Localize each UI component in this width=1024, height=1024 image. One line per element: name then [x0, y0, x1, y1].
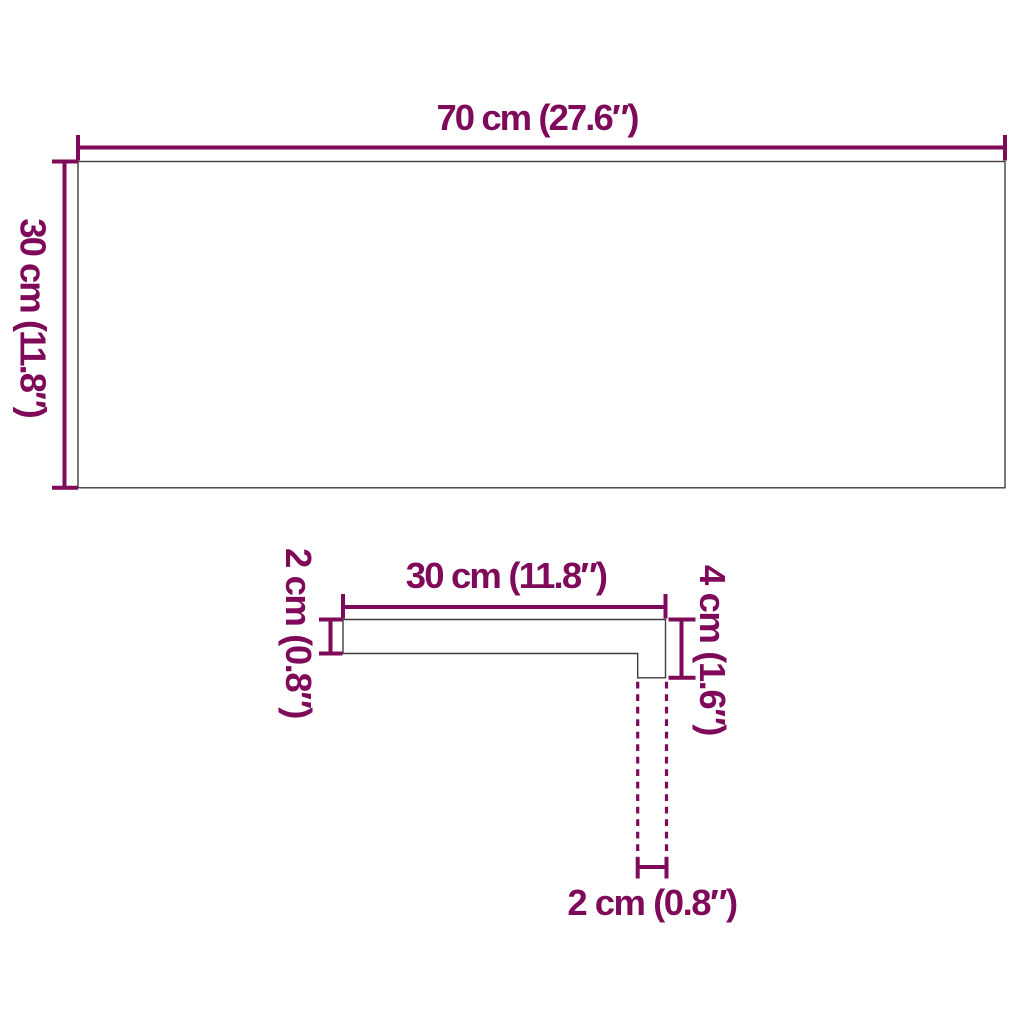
svg-text:2 cm (0.8″): 2 cm (0.8″): [278, 548, 319, 718]
svg-text:2 cm (0.8″): 2 cm (0.8″): [567, 882, 737, 923]
svg-text:30 cm (11.8″): 30 cm (11.8″): [13, 218, 54, 417]
svg-text:70 cm (27.6″): 70 cm (27.6″): [436, 97, 638, 138]
svg-text:30 cm (11.8″): 30 cm (11.8″): [406, 555, 607, 596]
svg-text:4 cm (1.6″): 4 cm (1.6″): [692, 565, 733, 735]
